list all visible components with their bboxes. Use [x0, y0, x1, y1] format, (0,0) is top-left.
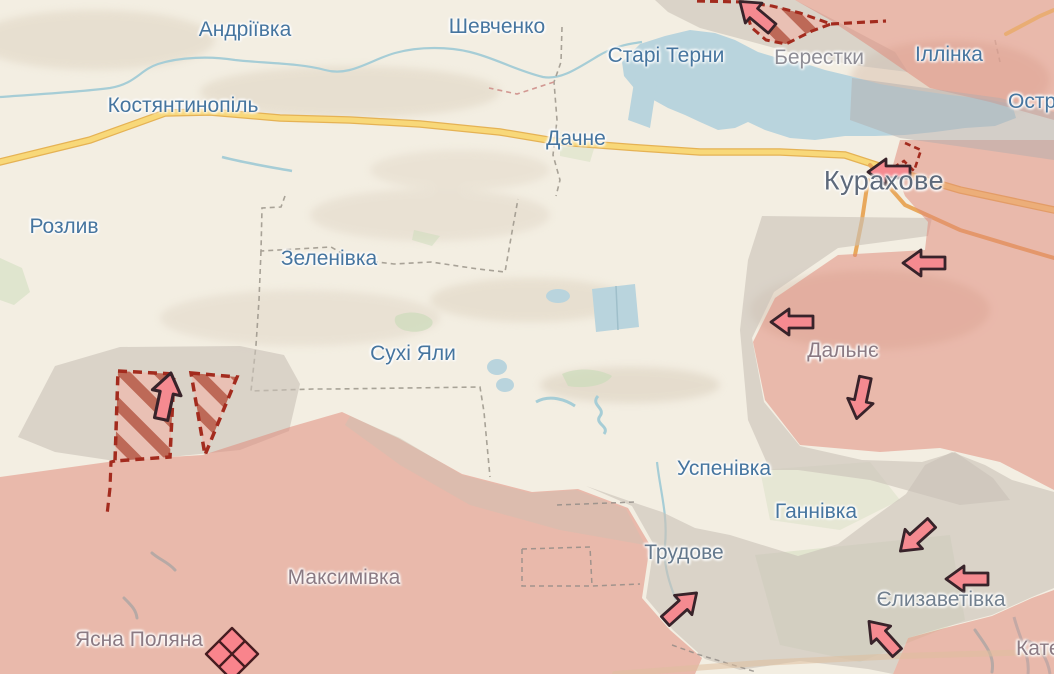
map-canvas[interactable]: Андріївка Шевченко Старі Терни Берестки …: [0, 0, 1054, 674]
map-artwork: [0, 0, 1054, 674]
